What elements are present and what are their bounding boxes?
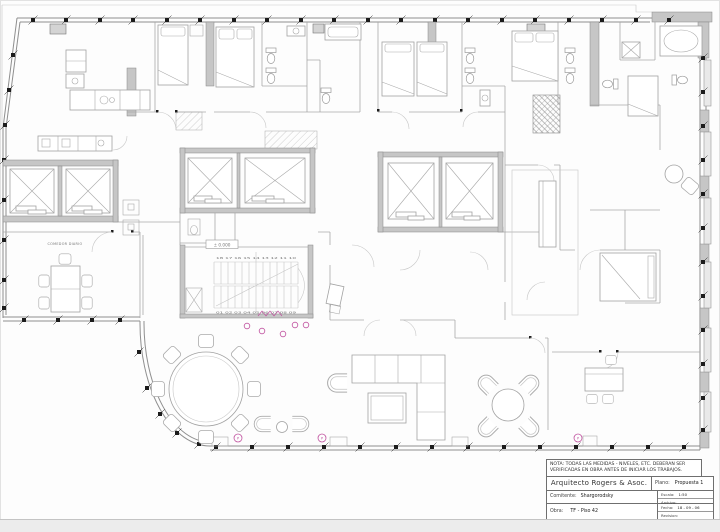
game-table xyxy=(475,372,542,440)
right-rooms-furniture xyxy=(475,165,700,440)
obra-label: Obra: xyxy=(550,509,563,514)
stair-upper-step-numbers: 18 17 16 15 14 13 12 11 10 xyxy=(216,256,296,260)
title-block: NOTA: TODAS LAS MEDIDAS - NIVELES, ETC. … xyxy=(546,459,714,520)
plano-label: Plano: xyxy=(655,481,670,486)
comedor-diario: COMEDOR DIARIO xyxy=(39,242,92,312)
elevator-core-left xyxy=(3,160,139,235)
fecha-value: 18 - 09 - 06 xyxy=(677,505,699,510)
floor-plan: ± 0.000 18 17 16 15 14 13 12 11 10 01 02… xyxy=(0,0,720,532)
comedor-diario-label: COMEDOR DIARIO xyxy=(48,242,83,246)
note-line-2: VERIFICADAS EN OBRA ANTES DE INICIAR LOS… xyxy=(550,468,698,474)
fecha-label: Fecha: xyxy=(661,505,673,510)
escala-label: Escala: xyxy=(661,492,674,497)
comitente-value: Shargorodsky xyxy=(581,494,614,499)
stair-lower-step-numbers: 01 02 03 04 05 06 07 08 09 xyxy=(216,311,296,315)
escala-value: 1:50 xyxy=(678,492,687,497)
elevator-core-right xyxy=(378,152,503,232)
obra-value: TF - Piso 42 xyxy=(570,509,598,514)
plano-value: Propuesta 1 xyxy=(675,481,704,486)
revision-label: Revision: xyxy=(661,513,678,518)
sheet-margin-strip xyxy=(0,519,720,532)
comitente-label: Comitente: xyxy=(550,494,577,499)
drawing-sheet: ± 0.000 18 17 16 15 14 13 12 11 10 01 02… xyxy=(0,0,720,532)
marker-letter: P xyxy=(237,437,239,441)
elevator-core-center xyxy=(180,148,315,245)
architect-name: Arquitecto Rogers & Asoc. xyxy=(547,477,652,490)
staircase: ± 0.000 18 17 16 15 14 13 12 11 10 01 02… xyxy=(180,240,313,318)
dining-table xyxy=(152,335,261,444)
title-block-main: Arquitecto Rogers & Asoc. Plano: Propues… xyxy=(546,476,714,520)
marker-letter: P xyxy=(321,437,323,441)
kitchen xyxy=(38,50,150,151)
title-block-note: NOTA: TODAS LAS MEDIDAS - NIVELES, ETC. … xyxy=(546,459,702,477)
level-label: ± 0.000 xyxy=(214,243,231,248)
marker-letter: P xyxy=(577,437,579,441)
